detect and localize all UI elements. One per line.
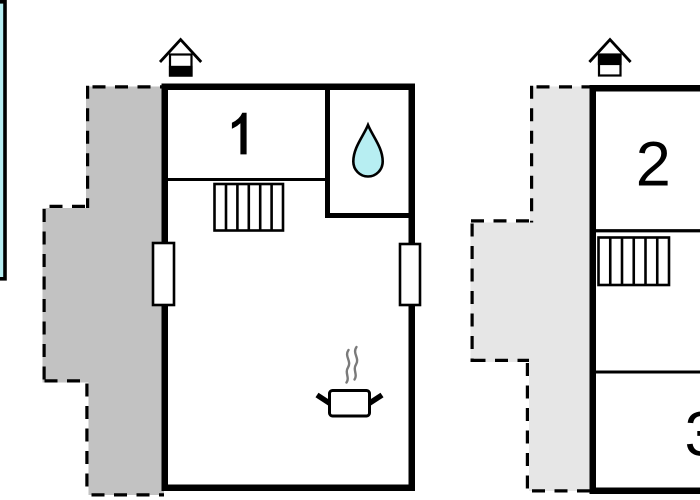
svg-text:3: 3 xyxy=(684,400,700,470)
svg-text:2: 2 xyxy=(636,129,671,199)
